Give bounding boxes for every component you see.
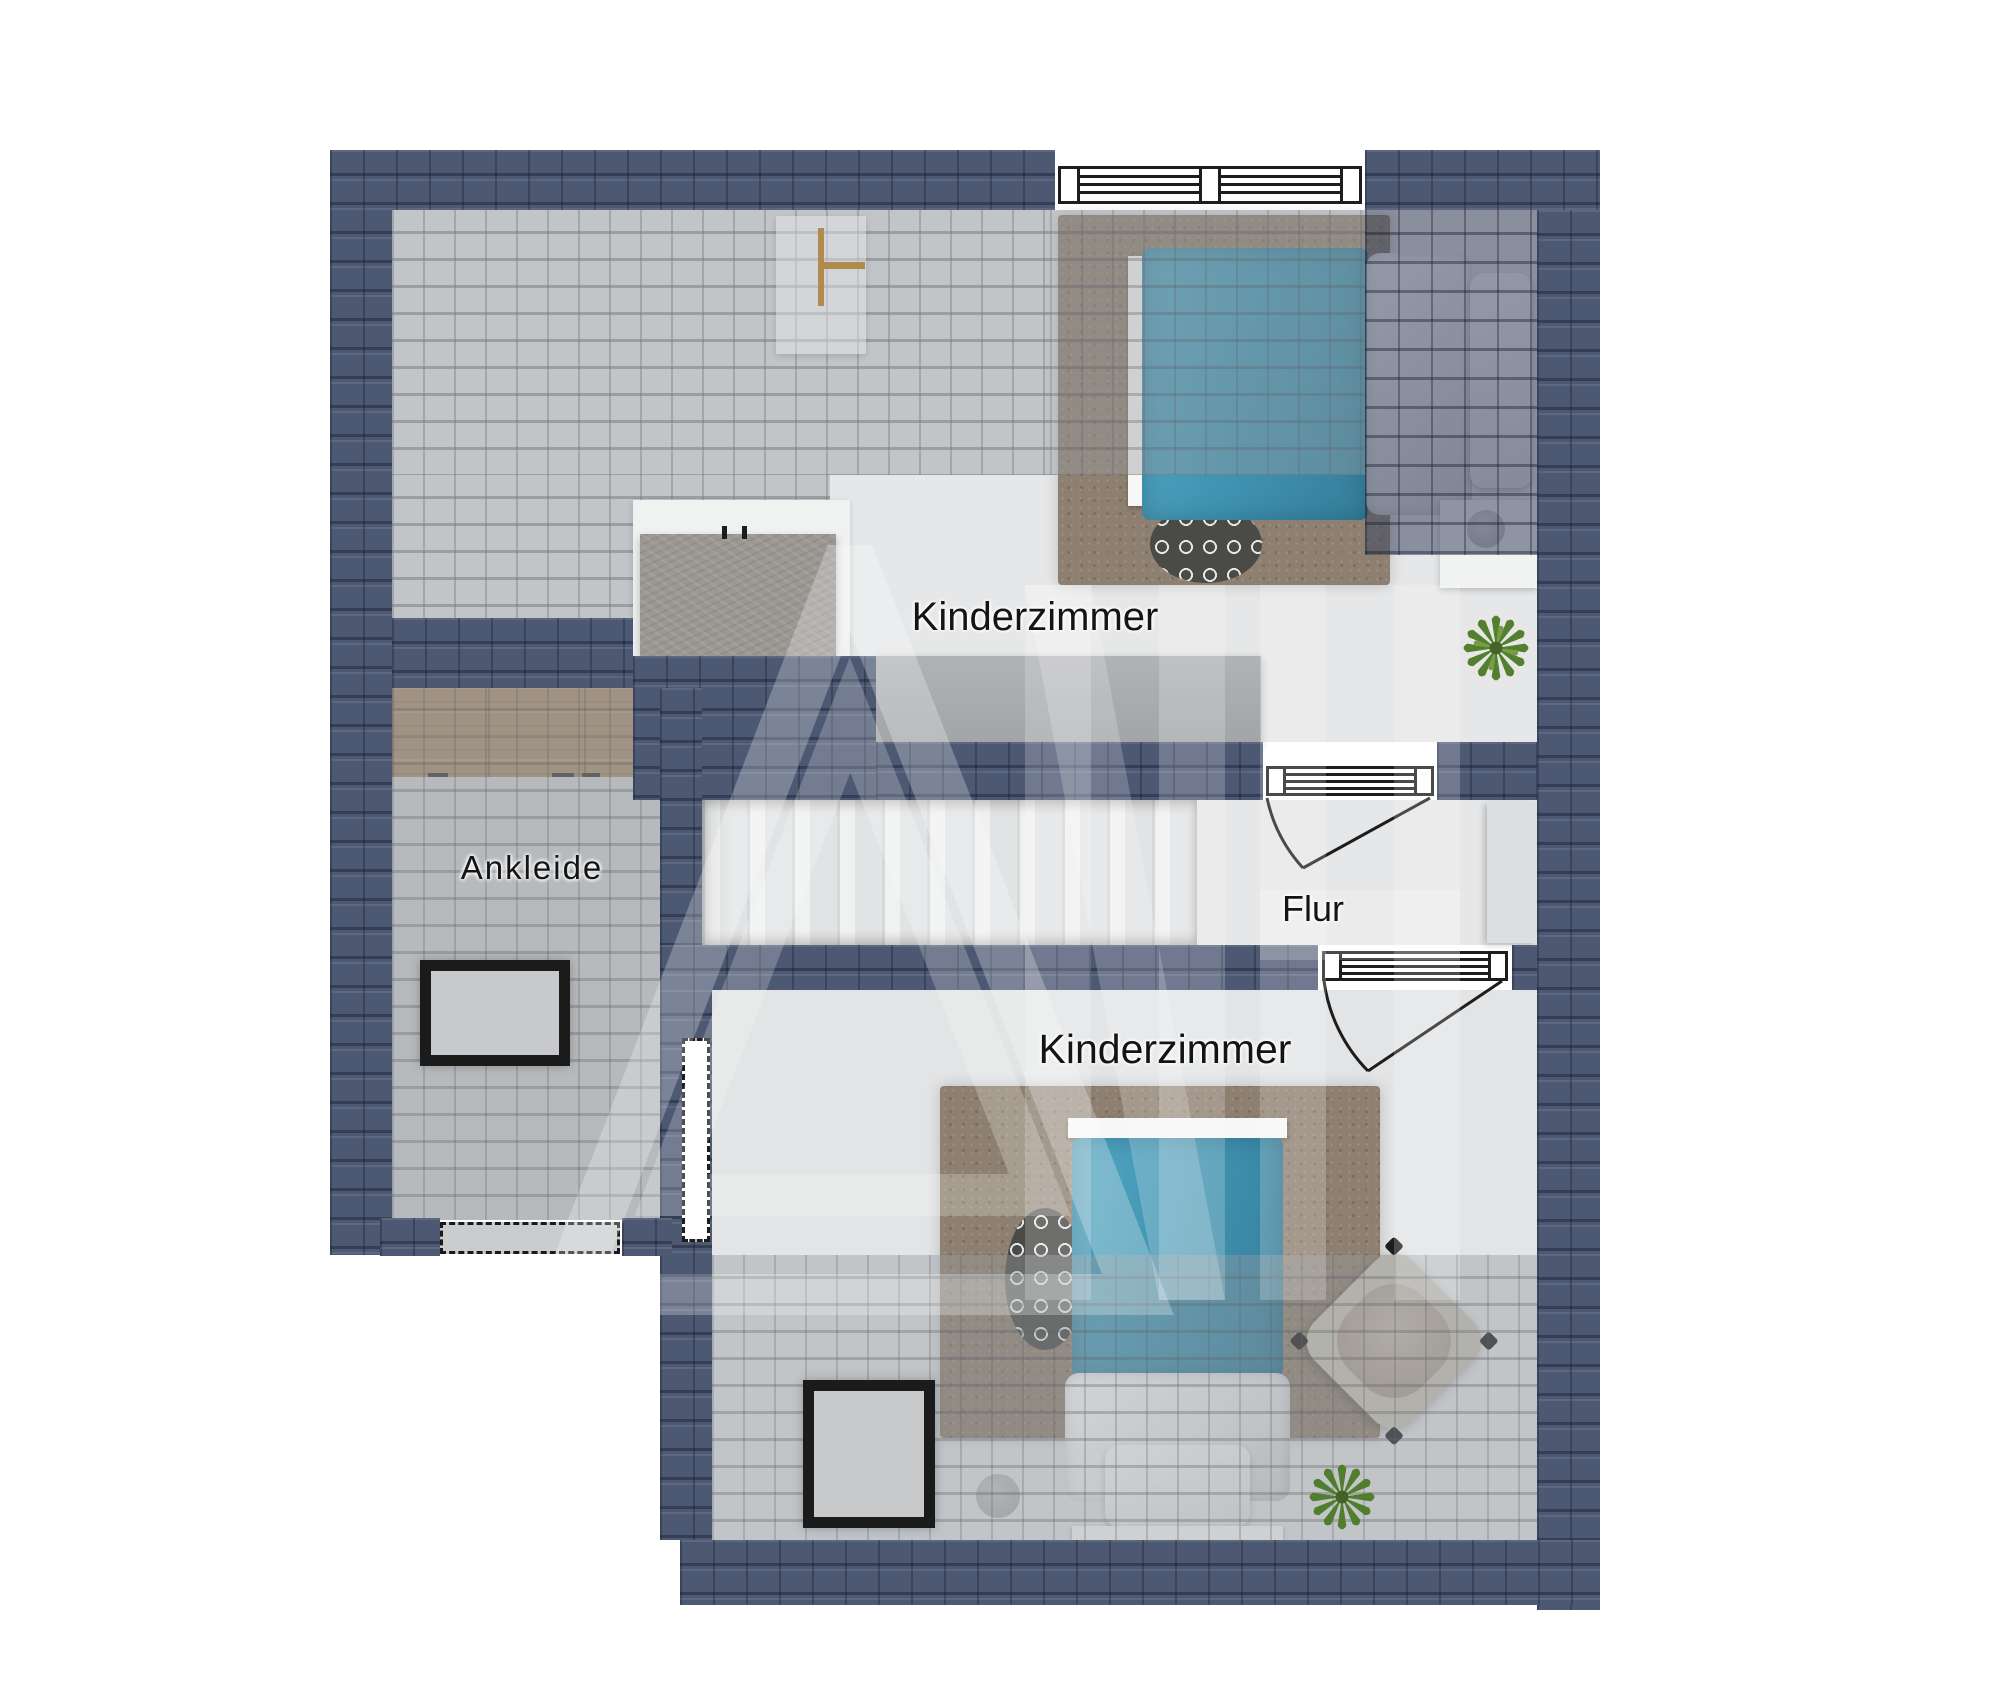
door-post bbox=[1266, 766, 1286, 796]
potted-plant-top bbox=[1460, 612, 1532, 684]
roof-slope-overlay-top bbox=[1050, 210, 1365, 475]
wall-top-right bbox=[1365, 150, 1600, 210]
roof-slope-overlay-ankleide bbox=[392, 687, 660, 1220]
room-label-kinderzimmer-bottom: Kinderzimmer bbox=[965, 1026, 1365, 1073]
wall-top-left bbox=[330, 150, 1055, 210]
hall-shelf bbox=[1487, 802, 1537, 943]
chimney-block bbox=[640, 534, 836, 656]
side-window bbox=[682, 1038, 710, 1242]
room-label-kinderzimmer-top: Kinderzimmer bbox=[840, 595, 1230, 640]
double-window bbox=[1058, 166, 1362, 204]
swing-door-flur bbox=[1255, 796, 1445, 896]
door-post bbox=[1322, 951, 1342, 981]
roof-window-ankleide bbox=[420, 960, 570, 1066]
wall-flur-top-right bbox=[1437, 742, 1537, 800]
chimney-mark-left bbox=[722, 526, 727, 539]
door-post bbox=[1414, 766, 1434, 796]
roof-window-kinderzimmer bbox=[803, 1380, 935, 1528]
wall-right bbox=[1537, 210, 1600, 1610]
desk-chair-bar bbox=[821, 262, 865, 269]
roof-slope-overlay-topright bbox=[1365, 210, 1537, 555]
floor-plan-canvas: Kinderzimmer Ankleide Flur Kinderzimmer bbox=[0, 0, 2000, 1690]
room-label-ankleide: Ankleide bbox=[407, 849, 657, 887]
wall-stairs-bottom bbox=[660, 945, 1318, 990]
swing-door-kinderzimmer-leaf-bar bbox=[1322, 951, 1508, 981]
wall-left bbox=[330, 150, 392, 1255]
wall-ankleide-bottom-right bbox=[622, 1218, 672, 1256]
attic-storage-tiles-upper bbox=[392, 210, 1050, 475]
bed-headbar bbox=[1068, 1118, 1287, 1138]
window-post bbox=[1340, 166, 1362, 204]
swing-door-flur-leaf-bar bbox=[1266, 766, 1434, 796]
door-post bbox=[1488, 951, 1508, 981]
potted-plant-bottom bbox=[1306, 1461, 1378, 1533]
dormer-window bbox=[440, 1222, 620, 1254]
wall-door2-right bbox=[1512, 945, 1537, 990]
wall-stairs-top bbox=[876, 742, 1263, 800]
window-post bbox=[1199, 166, 1221, 204]
chimney-mark-right bbox=[742, 526, 747, 539]
wall-ankleide-top bbox=[392, 618, 633, 688]
wardrobe bbox=[876, 656, 1261, 746]
window-post bbox=[1058, 166, 1080, 204]
room-label-flur: Flur bbox=[1248, 888, 1378, 930]
staircase bbox=[702, 800, 1197, 945]
wall-bottom bbox=[680, 1540, 1600, 1605]
wall-ankleide-bottom-left bbox=[380, 1218, 440, 1256]
